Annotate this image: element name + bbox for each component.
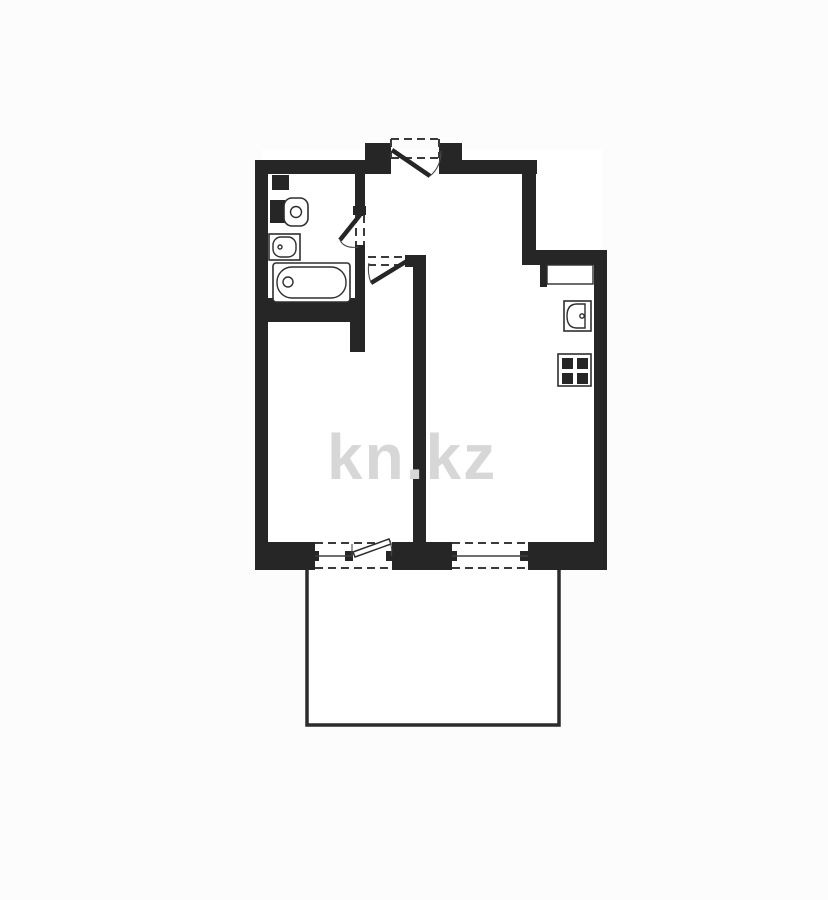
toilet-tank xyxy=(270,200,285,223)
toilet-icon xyxy=(270,198,308,226)
bottom-wall-right xyxy=(528,542,607,570)
watermark: kn.kz xyxy=(327,421,497,493)
bathroom-door-lintel xyxy=(353,206,366,215)
toilet-bowl xyxy=(284,198,308,226)
bottom-wall-mid-pier xyxy=(392,542,452,570)
kitchen-sink-icon xyxy=(564,301,591,331)
balcony-floor xyxy=(306,570,560,726)
bathroom-sink-icon xyxy=(269,234,300,260)
bathroom-duct-stub xyxy=(272,175,289,190)
stove-burner xyxy=(562,373,573,384)
central-wall xyxy=(413,255,426,542)
right-outer-wall xyxy=(594,250,607,570)
entrance-right-jamb xyxy=(439,143,462,174)
floor-plan: kn.kz xyxy=(0,0,828,900)
bathroom-right-wall-lower xyxy=(355,245,365,322)
top-wall-right xyxy=(462,160,537,174)
hallway-right-wall xyxy=(522,174,536,265)
apartment-floor xyxy=(262,150,602,565)
stove-burner xyxy=(577,373,588,384)
bottom-wall-left xyxy=(255,542,315,570)
top-wall-left xyxy=(255,160,378,174)
stove-icon xyxy=(558,354,591,386)
bedroom-wall-stub xyxy=(350,322,365,352)
kitchen-duct-stub xyxy=(540,265,547,287)
bathtub-icon xyxy=(273,263,350,302)
left-outer-wall xyxy=(255,160,268,570)
entrance-left-jamb xyxy=(365,143,391,174)
stove-burner xyxy=(562,358,573,369)
kitchen-sink-counter xyxy=(564,301,591,331)
stove-burner xyxy=(577,358,588,369)
